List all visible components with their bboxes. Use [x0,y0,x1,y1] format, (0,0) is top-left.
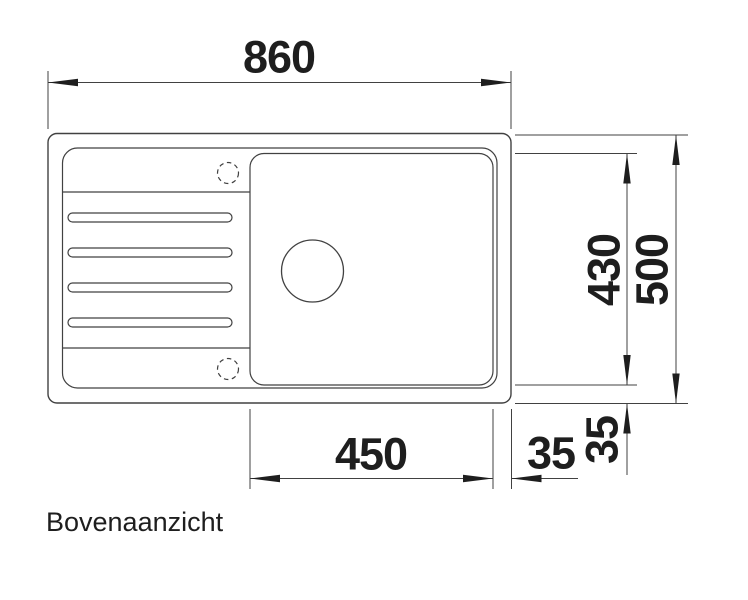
dim-label-35-right: 35 [527,431,575,476]
dim-label-35-bottom: 35 [580,416,625,464]
dim-label-450: 450 [335,432,407,477]
dim-label-860: 860 [243,35,315,80]
arrowhead-right [481,79,511,86]
arrowhead-right [463,475,493,482]
dim-label-430: 430 [582,234,627,306]
drainer-groove [68,213,232,222]
arrowhead-left [48,79,78,86]
drain-hole-circle [282,240,344,302]
arrowhead-up [672,135,679,165]
arrowhead-down [623,355,630,385]
drainer-groove [68,283,232,292]
arrowhead-down [672,374,679,404]
drainer-groove [68,318,232,327]
drainer-groove [68,248,232,257]
sink-bowl [250,154,493,386]
arrowhead-left [250,475,280,482]
tap-hole-bottom [218,359,239,380]
view-title: Bovenaanzicht [46,506,223,538]
tap-hole-top [218,163,239,184]
sink-top-view-drawing: 860 450 35 430 500 35 Bovenaanzicht [0,0,748,600]
sink-inner-depression [63,148,498,388]
drainer-grooves [68,213,232,327]
sink-outer-rim [48,134,511,404]
dim-label-500: 500 [630,234,675,306]
sink-geometry [48,134,511,404]
arrowhead-up [623,154,630,184]
